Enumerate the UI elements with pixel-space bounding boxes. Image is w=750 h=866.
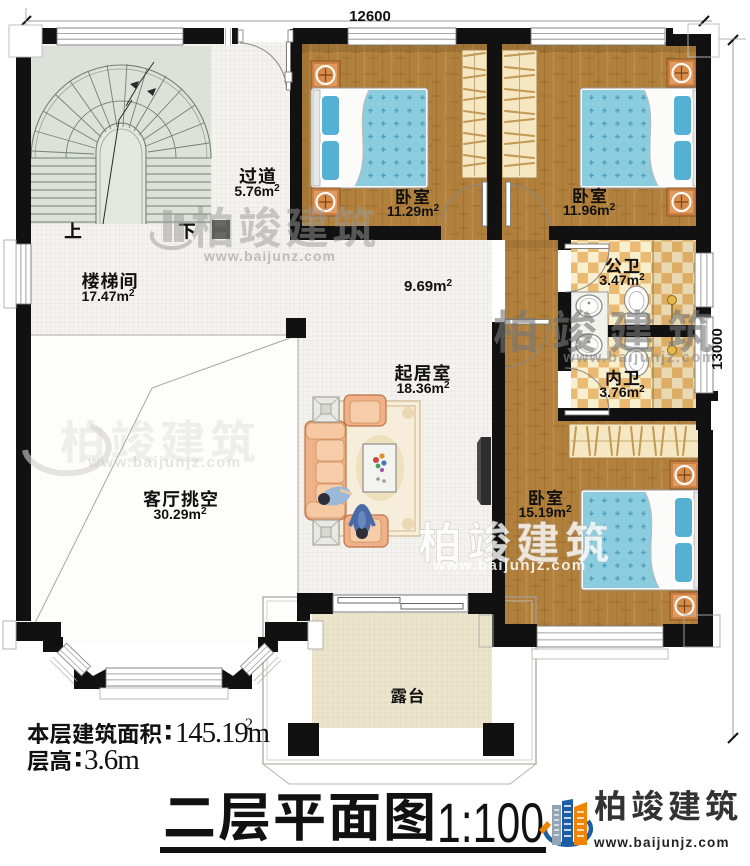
svg-text:www.baijunz.com: www.baijunz.com — [203, 248, 336, 264]
svg-text:9.69m2: 9.69m2 — [404, 278, 453, 295]
svg-text:3.6m: 3.6m — [84, 744, 140, 776]
svg-text:30.29m2: 30.29m2 — [153, 506, 206, 522]
svg-text:www.baijunjz.com: www.baijunjz.com — [562, 349, 716, 366]
svg-text:3.47m2: 3.47m2 — [599, 272, 645, 288]
svg-text:www.baijunjz.com: www.baijunjz.com — [593, 835, 730, 850]
svg-text:www.baijunjz.com: www.baijunjz.com — [432, 557, 586, 574]
svg-text:5.76m2: 5.76m2 — [234, 183, 280, 199]
svg-text:145.19m: 145.19m — [175, 717, 271, 749]
svg-text:3.76m2: 3.76m2 — [599, 384, 645, 400]
svg-text:12600: 12600 — [349, 8, 391, 25]
svg-text:17.47m2: 17.47m2 — [81, 288, 134, 304]
svg-text:11.96m2: 11.96m2 — [563, 202, 616, 218]
svg-text:1:100: 1:100 — [437, 791, 544, 854]
svg-text:18.36m2: 18.36m2 — [396, 380, 449, 396]
svg-text:2: 2 — [245, 716, 253, 733]
svg-text:www.baijunjz.com: www.baijunjz.com — [87, 454, 241, 471]
svg-text:13000: 13000 — [709, 328, 726, 370]
svg-text:15.19m2: 15.19m2 — [518, 504, 571, 520]
svg-text:11.29m2: 11.29m2 — [387, 203, 440, 219]
